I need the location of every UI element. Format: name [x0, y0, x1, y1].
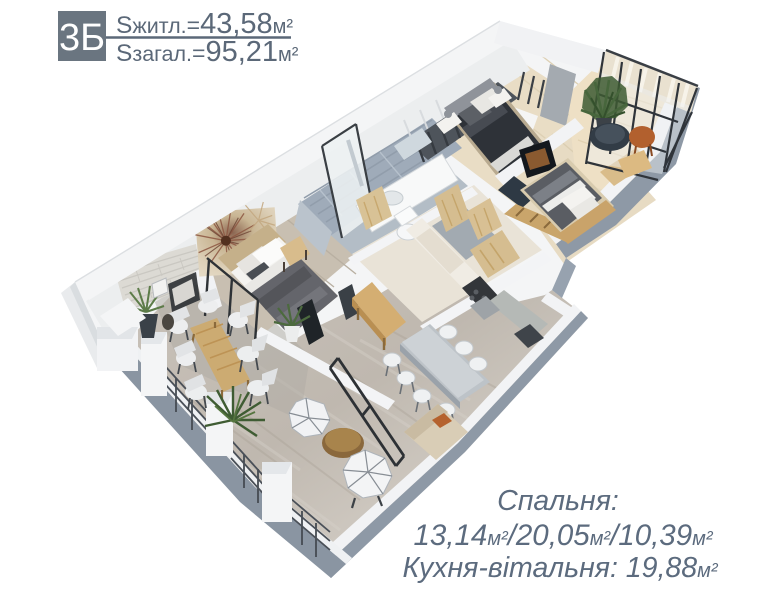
svg-text:13,14м²/20,05м²/10,39м²: 13,14м²/20,05м²/10,39м²: [413, 519, 713, 552]
svg-text:Спальня:: Спальня:: [497, 485, 619, 517]
svg-text:3Б: 3Б: [59, 17, 105, 59]
svg-text:Кухня-вітальня: 19,88м²: Кухня-вітальня: 19,88м²: [402, 552, 718, 584]
